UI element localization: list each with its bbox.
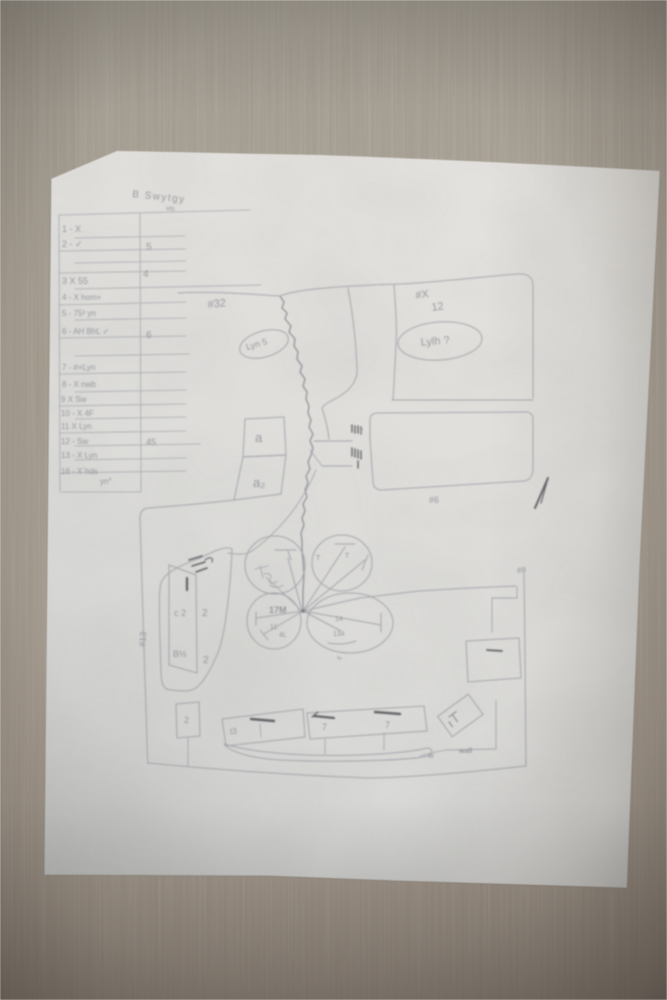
svg-text:#Χ: #Χ (415, 288, 431, 302)
svg-text:9 X Sw: 9 X Sw (61, 395, 87, 404)
svg-text:11: 11 (270, 624, 277, 631)
svg-text:7: 7 (322, 722, 327, 732)
svg-text:T: T (316, 555, 321, 562)
svg-text:7 - #×Lyn: 7 - #×Lyn (62, 363, 95, 372)
svg-text:y: y (360, 428, 363, 434)
svg-text:4L: 4L (279, 632, 287, 639)
svg-text:2: 2 (184, 715, 189, 725)
svg-text:6: 6 (146, 330, 152, 341)
svg-text:3 X 55: 3 X 55 (62, 276, 88, 286)
svg-text:t3: t3 (230, 727, 237, 736)
svg-text:w: w (427, 751, 434, 760)
svg-text:Lylh ?: Lylh ? (420, 335, 450, 349)
svg-text:#13: #13 (137, 631, 148, 647)
svg-text:7: 7 (385, 720, 390, 730)
svg-text:B½: B½ (173, 649, 187, 659)
svg-text:8 - X nwb: 8 - X nwb (62, 380, 96, 389)
svg-text:#8: #8 (517, 566, 526, 575)
svg-text:5 - 75² yn: 5 - 75² yn (62, 309, 96, 318)
svg-text:wall: wall (458, 748, 472, 755)
svg-text:17M: 17M (269, 605, 287, 615)
svg-text:12: 12 (431, 300, 445, 314)
svg-text:#32: #32 (207, 297, 227, 311)
svg-text:T: T (345, 553, 350, 560)
svg-text:a: a (255, 430, 263, 445)
svg-text:4: 4 (143, 269, 149, 280)
svg-text:5: 5 (146, 242, 152, 253)
svg-text:16 - X´hds: 16 - X´hds (61, 467, 98, 476)
svg-text:13 - X Lyn: 13 - X Lyn (61, 451, 97, 460)
svg-text:11 X Lyn: 11 X Lyn (61, 422, 92, 431)
svg-text:#6: #6 (429, 495, 439, 505)
svg-text:2 - ✓: 2 - ✓ (62, 239, 83, 249)
svg-text:c 2: c 2 (174, 608, 186, 618)
svg-text:134: 134 (333, 631, 345, 638)
svg-text:6 - AH BhL ✓: 6 - AH BhL ✓ (62, 327, 109, 336)
svg-text:yn°: yn° (100, 477, 112, 486)
svg-text:10 - X 4F: 10 - X 4F (61, 409, 94, 418)
svg-text:2: 2 (203, 655, 209, 666)
svg-text:1 - X: 1 - X (62, 224, 81, 234)
svg-text:14: 14 (335, 616, 343, 623)
svg-text:45: 45 (146, 437, 156, 447)
svg-text:2: 2 (202, 608, 208, 619)
svg-text:4 - X hom+: 4 - X hom+ (62, 293, 102, 302)
svg-text:vis: vis (166, 205, 176, 213)
svg-text:a₂: a₂ (253, 475, 265, 490)
svg-text:12 - Sw: 12 - Sw (61, 437, 88, 446)
